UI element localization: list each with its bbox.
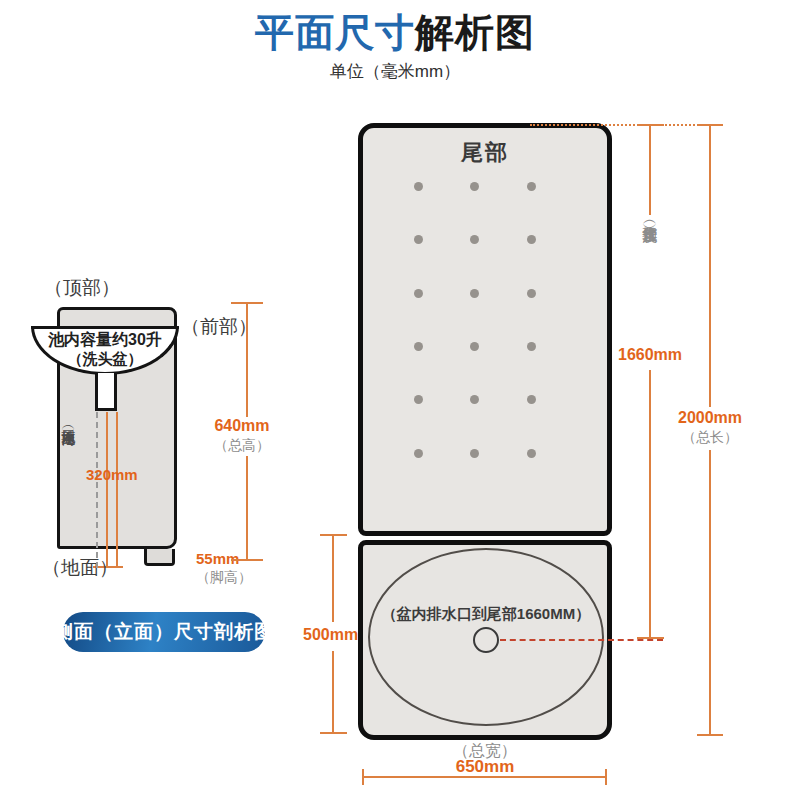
vent-hole-dot (414, 342, 423, 351)
total-width-value: 650mm (358, 757, 612, 777)
vent-hole-dot (527, 182, 536, 191)
drain-height-label-vertical: （排水口离地面） (60, 420, 78, 554)
dimension-diagram-page: 平面尺寸解析图 单位（毫米mm） （顶部） 池内容量约30升 （洗头盆） （前部… (0, 0, 790, 790)
vent-hole-dot (527, 289, 536, 298)
unit-note: 单位（毫米mm） (0, 60, 790, 83)
basin-section-line-lower (332, 651, 334, 732)
top-reference-dotted-line (530, 124, 723, 126)
pipe-length-line-upper (649, 126, 651, 215)
vent-hole-dot (470, 395, 479, 404)
basin-section-line-upper (332, 535, 334, 622)
vent-hole-dot (414, 182, 423, 191)
side-view-badge: 侧面（立面）尺寸剖析图 (63, 612, 265, 652)
drain-reference-dashed-line (500, 639, 663, 641)
vent-hole-dot (470, 289, 479, 298)
drain-pipe-line-2 (116, 412, 118, 568)
total-length-value: 2000mm (678, 409, 742, 427)
vent-hole-dot (470, 235, 479, 244)
total-height-line-lower (246, 456, 248, 560)
pipe-length-line-lower (649, 370, 651, 637)
total-length-label: （总长） (678, 429, 742, 447)
vent-hole-dot (527, 449, 536, 458)
vent-hole-dot (470, 182, 479, 191)
vent-hole-dot (527, 235, 536, 244)
basin-name-text: （洗头盆） (68, 350, 143, 368)
drain-height-value: 320mm (86, 466, 138, 483)
pipe-length-label-vertical: （排水管预埋长度） (640, 215, 659, 347)
total-length-line-upper (709, 126, 711, 407)
vent-hole-dot (527, 342, 536, 351)
vent-hole-dot (527, 395, 536, 404)
vent-hole-dot (414, 449, 423, 458)
vent-hole-grid (390, 160, 560, 480)
total-width-line (362, 776, 607, 778)
total-height-value: 640mm (212, 417, 272, 435)
page-title: 平面尺寸解析图 (0, 6, 790, 60)
basin-capacity-text: 池内容量约30升 (48, 330, 162, 350)
vent-hole-dot (470, 342, 479, 351)
foot-height-label: （脚高） (196, 569, 252, 587)
side-top-label: （顶部） (44, 275, 120, 301)
total-height-bottom-tick (231, 559, 263, 561)
side-view-foot (144, 549, 175, 566)
pipe-length-bottom-tick (637, 637, 664, 639)
basin-drain-note: （盆内排水口到尾部1660MM） (340, 605, 632, 624)
total-height-line-upper (246, 303, 248, 417)
vent-hole-dot (414, 289, 423, 298)
page-title-highlight: 平面尺寸 (255, 11, 415, 54)
drain-center-dashed-line (96, 412, 98, 568)
basin-section-bottom-tick (320, 732, 347, 734)
total-width-right-tick (605, 769, 607, 785)
drain-pipe-line-1 (106, 412, 108, 568)
vent-hole-dot (414, 235, 423, 244)
drain-pipe-side (95, 373, 117, 411)
total-height-label: （总高） (212, 437, 272, 455)
total-length-line-lower (709, 450, 711, 734)
vent-hole-dot (470, 449, 479, 458)
pipe-length-value: 1660mm (618, 346, 682, 364)
vent-hole-dot (414, 395, 423, 404)
page-title-rest: 解析图 (415, 11, 535, 54)
basin-section-value: 500mm (303, 626, 358, 644)
total-length-bottom-tick (697, 734, 723, 736)
drain-hole-plan (473, 627, 499, 653)
